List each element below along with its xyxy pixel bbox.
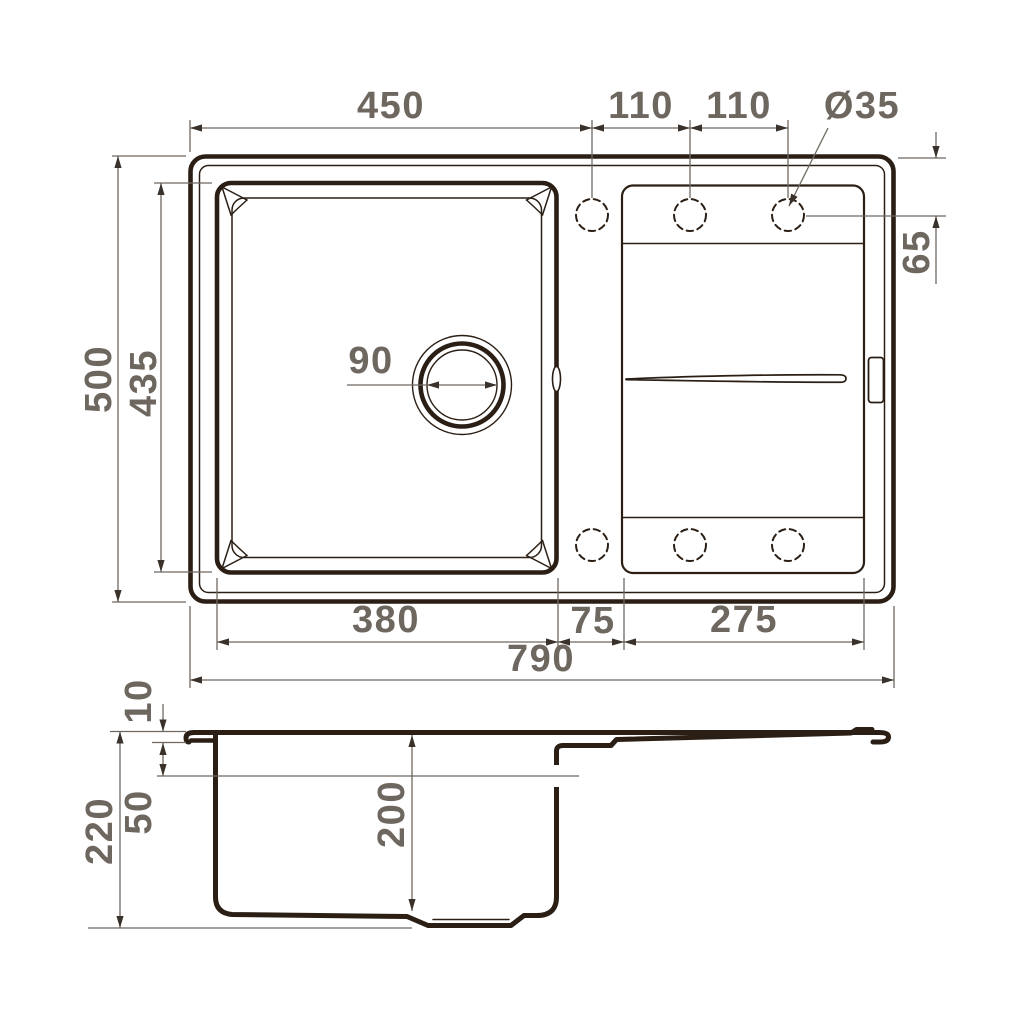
dim-380: 380	[352, 601, 420, 639]
top-view	[191, 157, 894, 602]
overflow-slot	[553, 367, 561, 392]
side-view	[186, 730, 889, 926]
dim-50: 50	[120, 789, 158, 834]
dim-500: 500	[80, 345, 118, 413]
dim-75: 75	[570, 602, 615, 640]
dim-450: 450	[357, 87, 425, 125]
dim-435: 435	[125, 349, 163, 417]
sink-technical-drawing	[0, 0, 1024, 1024]
dim-10: 10	[120, 678, 158, 723]
dim-65: 65	[898, 229, 936, 274]
drawing-canvas: 450 110 110 Ø35 90 65 500 435 380 75 275…	[0, 0, 1024, 1024]
hole-diameter-leader	[789, 128, 828, 206]
drainboard-groove	[626, 375, 846, 382]
dim-275: 275	[710, 601, 778, 639]
dim-hole-diameter: Ø35	[824, 87, 900, 125]
dim-110-b: 110	[706, 87, 772, 125]
dim-200: 200	[373, 780, 411, 848]
section-profile	[216, 730, 873, 926]
dim-drain-diameter: 90	[348, 342, 393, 380]
side-view-dimensions	[88, 704, 579, 928]
dim-790: 790	[507, 640, 575, 678]
dim-110-a: 110	[608, 87, 674, 125]
edge-handle-notch	[869, 358, 884, 403]
dim-220: 220	[81, 797, 119, 865]
